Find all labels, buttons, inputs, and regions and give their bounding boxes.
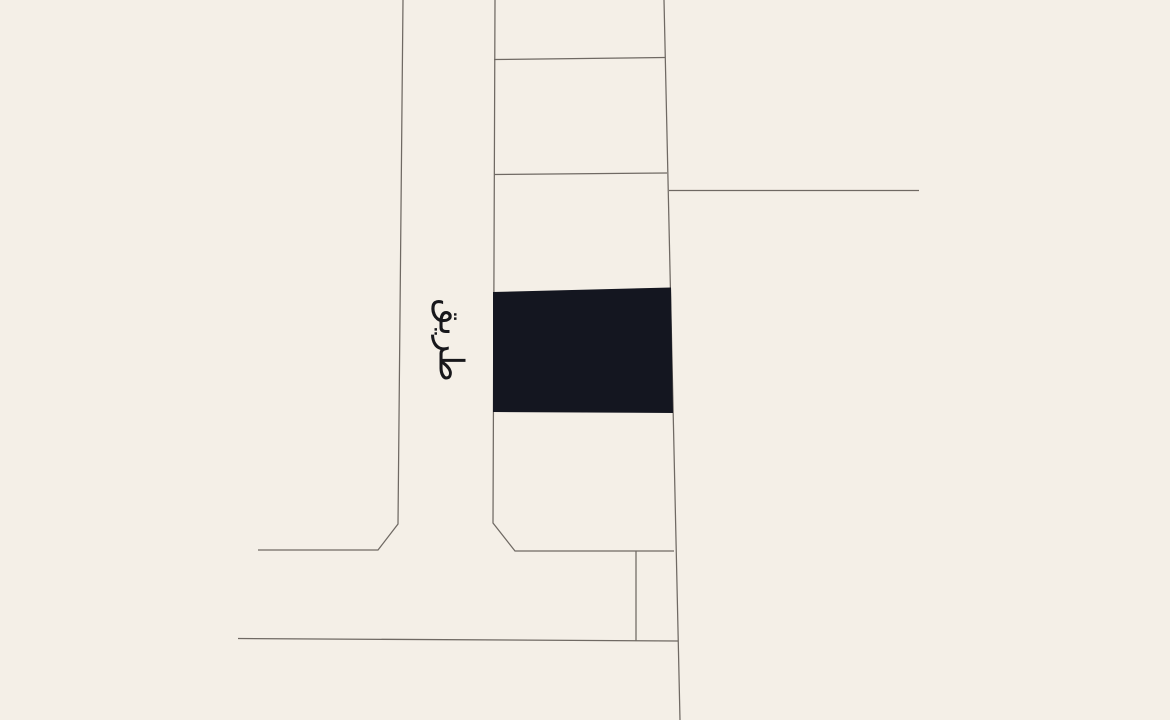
selected-parcel[interactable] <box>493 288 673 414</box>
map-viewport: طريق <box>0 0 1170 720</box>
map-canvas[interactable]: طريق <box>0 0 1170 720</box>
road-label: طريق <box>431 298 471 382</box>
